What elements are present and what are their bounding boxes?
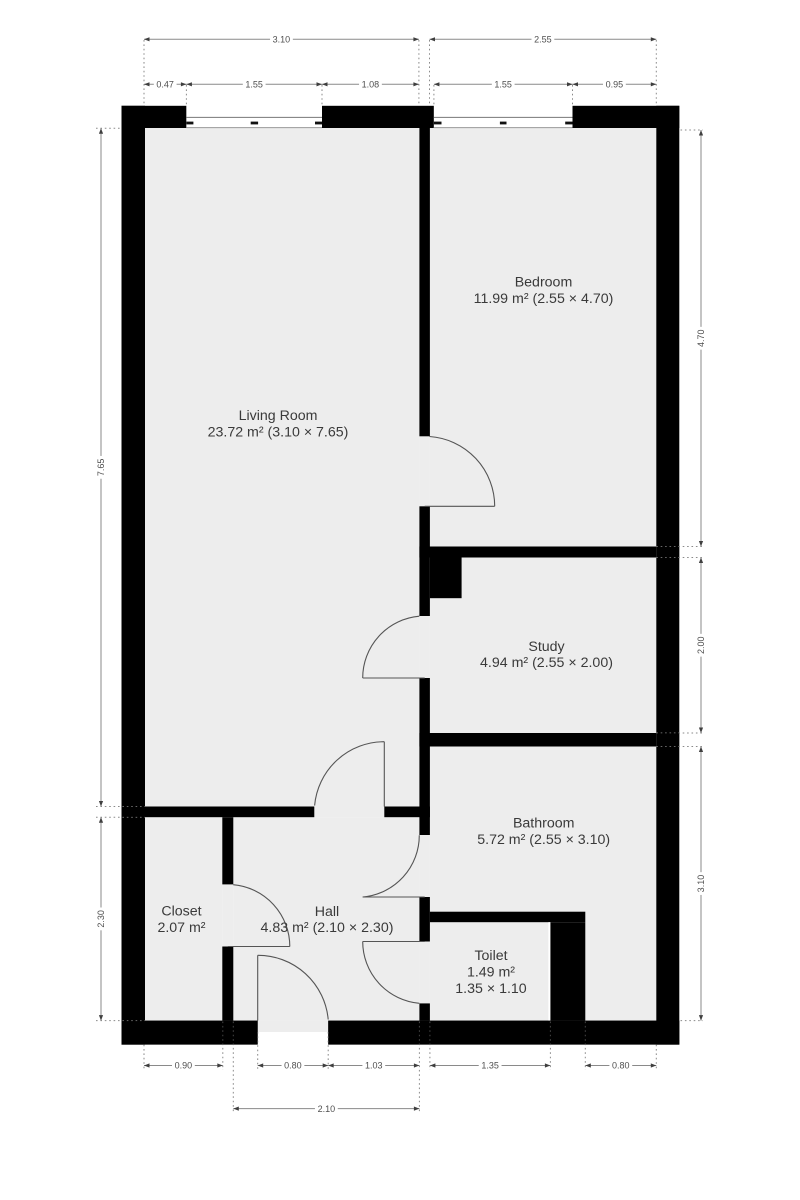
svg-text:1.35 × 1.10: 1.35 × 1.10 [455,981,527,997]
svg-text:Bathroom: Bathroom [513,816,575,832]
svg-text:2.00: 2.00 [696,636,706,654]
svg-text:23.72 m² (3.10 × 7.65): 23.72 m² (3.10 × 7.65) [208,424,349,440]
svg-text:3.10: 3.10 [273,35,291,45]
svg-text:Closet: Closet [161,904,201,920]
svg-text:1.35: 1.35 [481,1061,499,1071]
svg-text:2.55: 2.55 [534,35,552,45]
svg-text:0.90: 0.90 [175,1061,193,1071]
svg-text:2.30: 2.30 [96,910,106,928]
svg-text:0.80: 0.80 [612,1061,630,1071]
svg-text:0.80: 0.80 [284,1061,302,1071]
svg-text:Living Room: Living Room [239,408,318,424]
svg-text:1.49 m²: 1.49 m² [467,965,515,981]
svg-text:2.07 m²: 2.07 m² [157,920,205,936]
svg-text:7.65: 7.65 [96,459,106,477]
svg-text:0.47: 0.47 [156,80,174,90]
svg-text:5.72 m² (2.55 × 3.10): 5.72 m² (2.55 × 3.10) [477,832,610,848]
svg-text:1.08: 1.08 [362,80,380,90]
svg-text:4.70: 4.70 [696,329,706,347]
svg-text:2.10: 2.10 [318,1104,336,1114]
svg-text:Toilet: Toilet [474,948,507,964]
svg-text:11.99 m² (2.55 × 4.70): 11.99 m² (2.55 × 4.70) [474,291,614,307]
svg-text:1.55: 1.55 [245,80,263,90]
svg-text:1.55: 1.55 [494,80,512,90]
svg-text:4.94 m² (2.55 × 2.00): 4.94 m² (2.55 × 2.00) [480,655,613,671]
svg-text:Hall: Hall [315,904,339,920]
svg-text:1.03: 1.03 [365,1061,383,1071]
svg-text:Bedroom: Bedroom [515,275,573,291]
svg-text:4.83 m² (2.10 × 2.30): 4.83 m² (2.10 × 2.30) [261,920,394,936]
svg-text:0.95: 0.95 [606,80,624,90]
svg-text:Study: Study [528,639,565,655]
svg-text:3.10: 3.10 [696,875,706,893]
